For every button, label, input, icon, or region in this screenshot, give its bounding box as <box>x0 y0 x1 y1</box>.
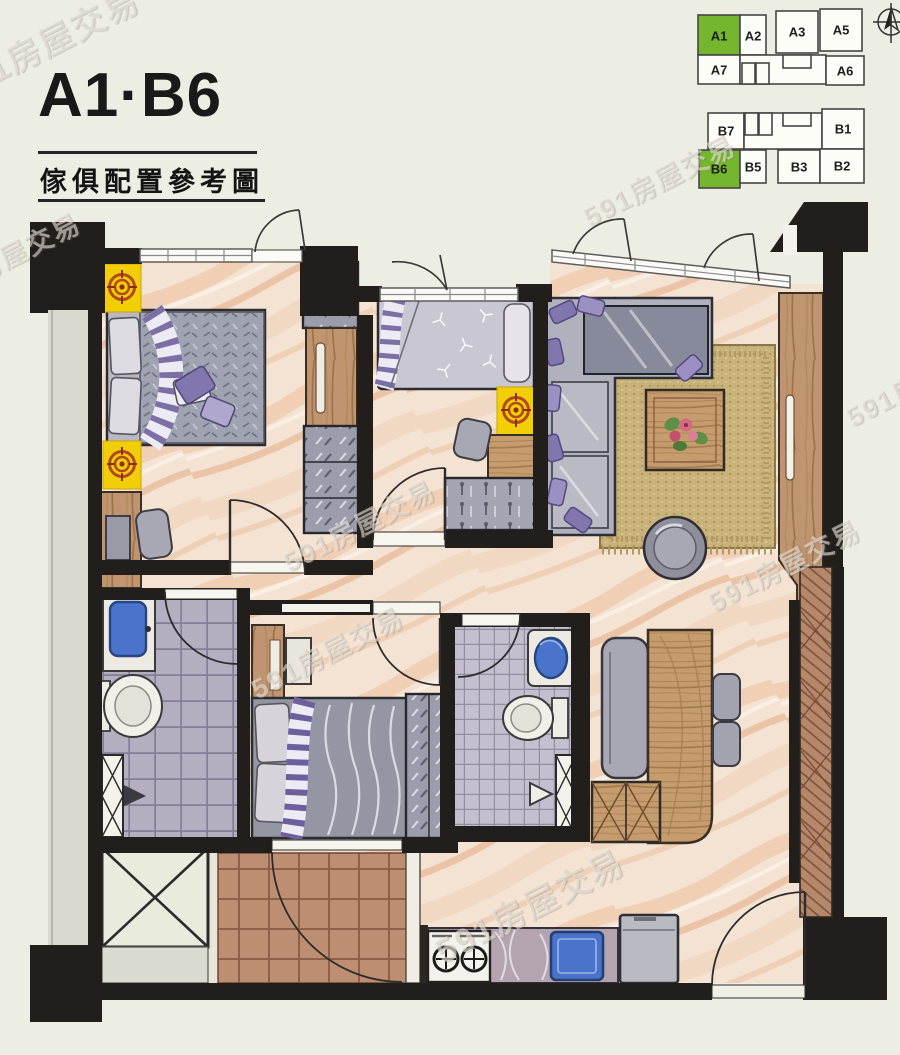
floor-plan-page: A1·B6 傢俱配置參考圖 A1 A <box>0 0 900 1055</box>
unit-label-a6: A6 <box>837 63 854 78</box>
storage-cabinet <box>592 782 660 842</box>
single-bed <box>378 297 534 389</box>
desk-chair <box>135 508 173 560</box>
ceiling-light-icon <box>103 264 141 312</box>
dining-chair <box>713 674 740 720</box>
single-bed <box>252 698 408 838</box>
double-bed <box>107 310 265 445</box>
unit-label-b6: B6 <box>711 161 728 176</box>
kitchen-sink <box>551 932 603 980</box>
compass-icon <box>873 3 900 43</box>
unit-label-a1: A1 <box>711 28 728 43</box>
unit-label-b3: B3 <box>791 159 808 174</box>
unit-label-a5: A5 <box>833 22 850 37</box>
toilet <box>95 675 162 737</box>
unit-label-b7: B7 <box>718 123 735 138</box>
unit-label-a7: A7 <box>711 62 728 77</box>
bench <box>602 638 648 778</box>
window <box>380 255 518 301</box>
window-sill <box>800 567 832 917</box>
floor-plan <box>0 200 900 1055</box>
pillow <box>504 304 530 382</box>
coffee-table <box>646 390 724 470</box>
vanity-sink-2 <box>528 630 576 686</box>
wardrobe <box>445 478 535 530</box>
ceiling-light-icon <box>103 441 141 489</box>
unit-label-b1: B1 <box>835 121 852 136</box>
stove <box>428 931 490 982</box>
bathroom-1 <box>95 588 237 850</box>
vanity-sink <box>103 589 155 671</box>
balcony-divider-wall <box>406 852 420 983</box>
title-underline <box>38 151 257 154</box>
refrigerator <box>620 915 678 983</box>
nightstand <box>286 638 311 684</box>
laundry-balcony <box>102 848 420 983</box>
unit-label-a2: A2 <box>745 28 762 43</box>
key-plan: A1 A2 A3 A5 A7 A6 B7 B1 B6 B5 B3 B2 <box>688 0 900 198</box>
side-table <box>644 517 706 579</box>
unit-label-b2: B2 <box>834 158 851 173</box>
balcony-floor <box>218 853 408 983</box>
casement-arc-icon <box>255 210 305 252</box>
page-subtitle: 傢俱配置參考圖 <box>40 160 264 199</box>
page-title: A1·B6 <box>38 60 222 131</box>
window <box>140 249 302 262</box>
unit-label-b5: B5 <box>745 159 762 174</box>
ceiling-light-icon <box>497 387 535 435</box>
desk-chair <box>452 417 492 462</box>
unit-label-a3: A3 <box>789 24 806 39</box>
bathroom-2 <box>455 613 585 840</box>
pipe-duct <box>102 755 123 837</box>
dining-chair <box>713 722 740 766</box>
toilet-2 <box>503 696 568 740</box>
desk <box>488 435 535 478</box>
